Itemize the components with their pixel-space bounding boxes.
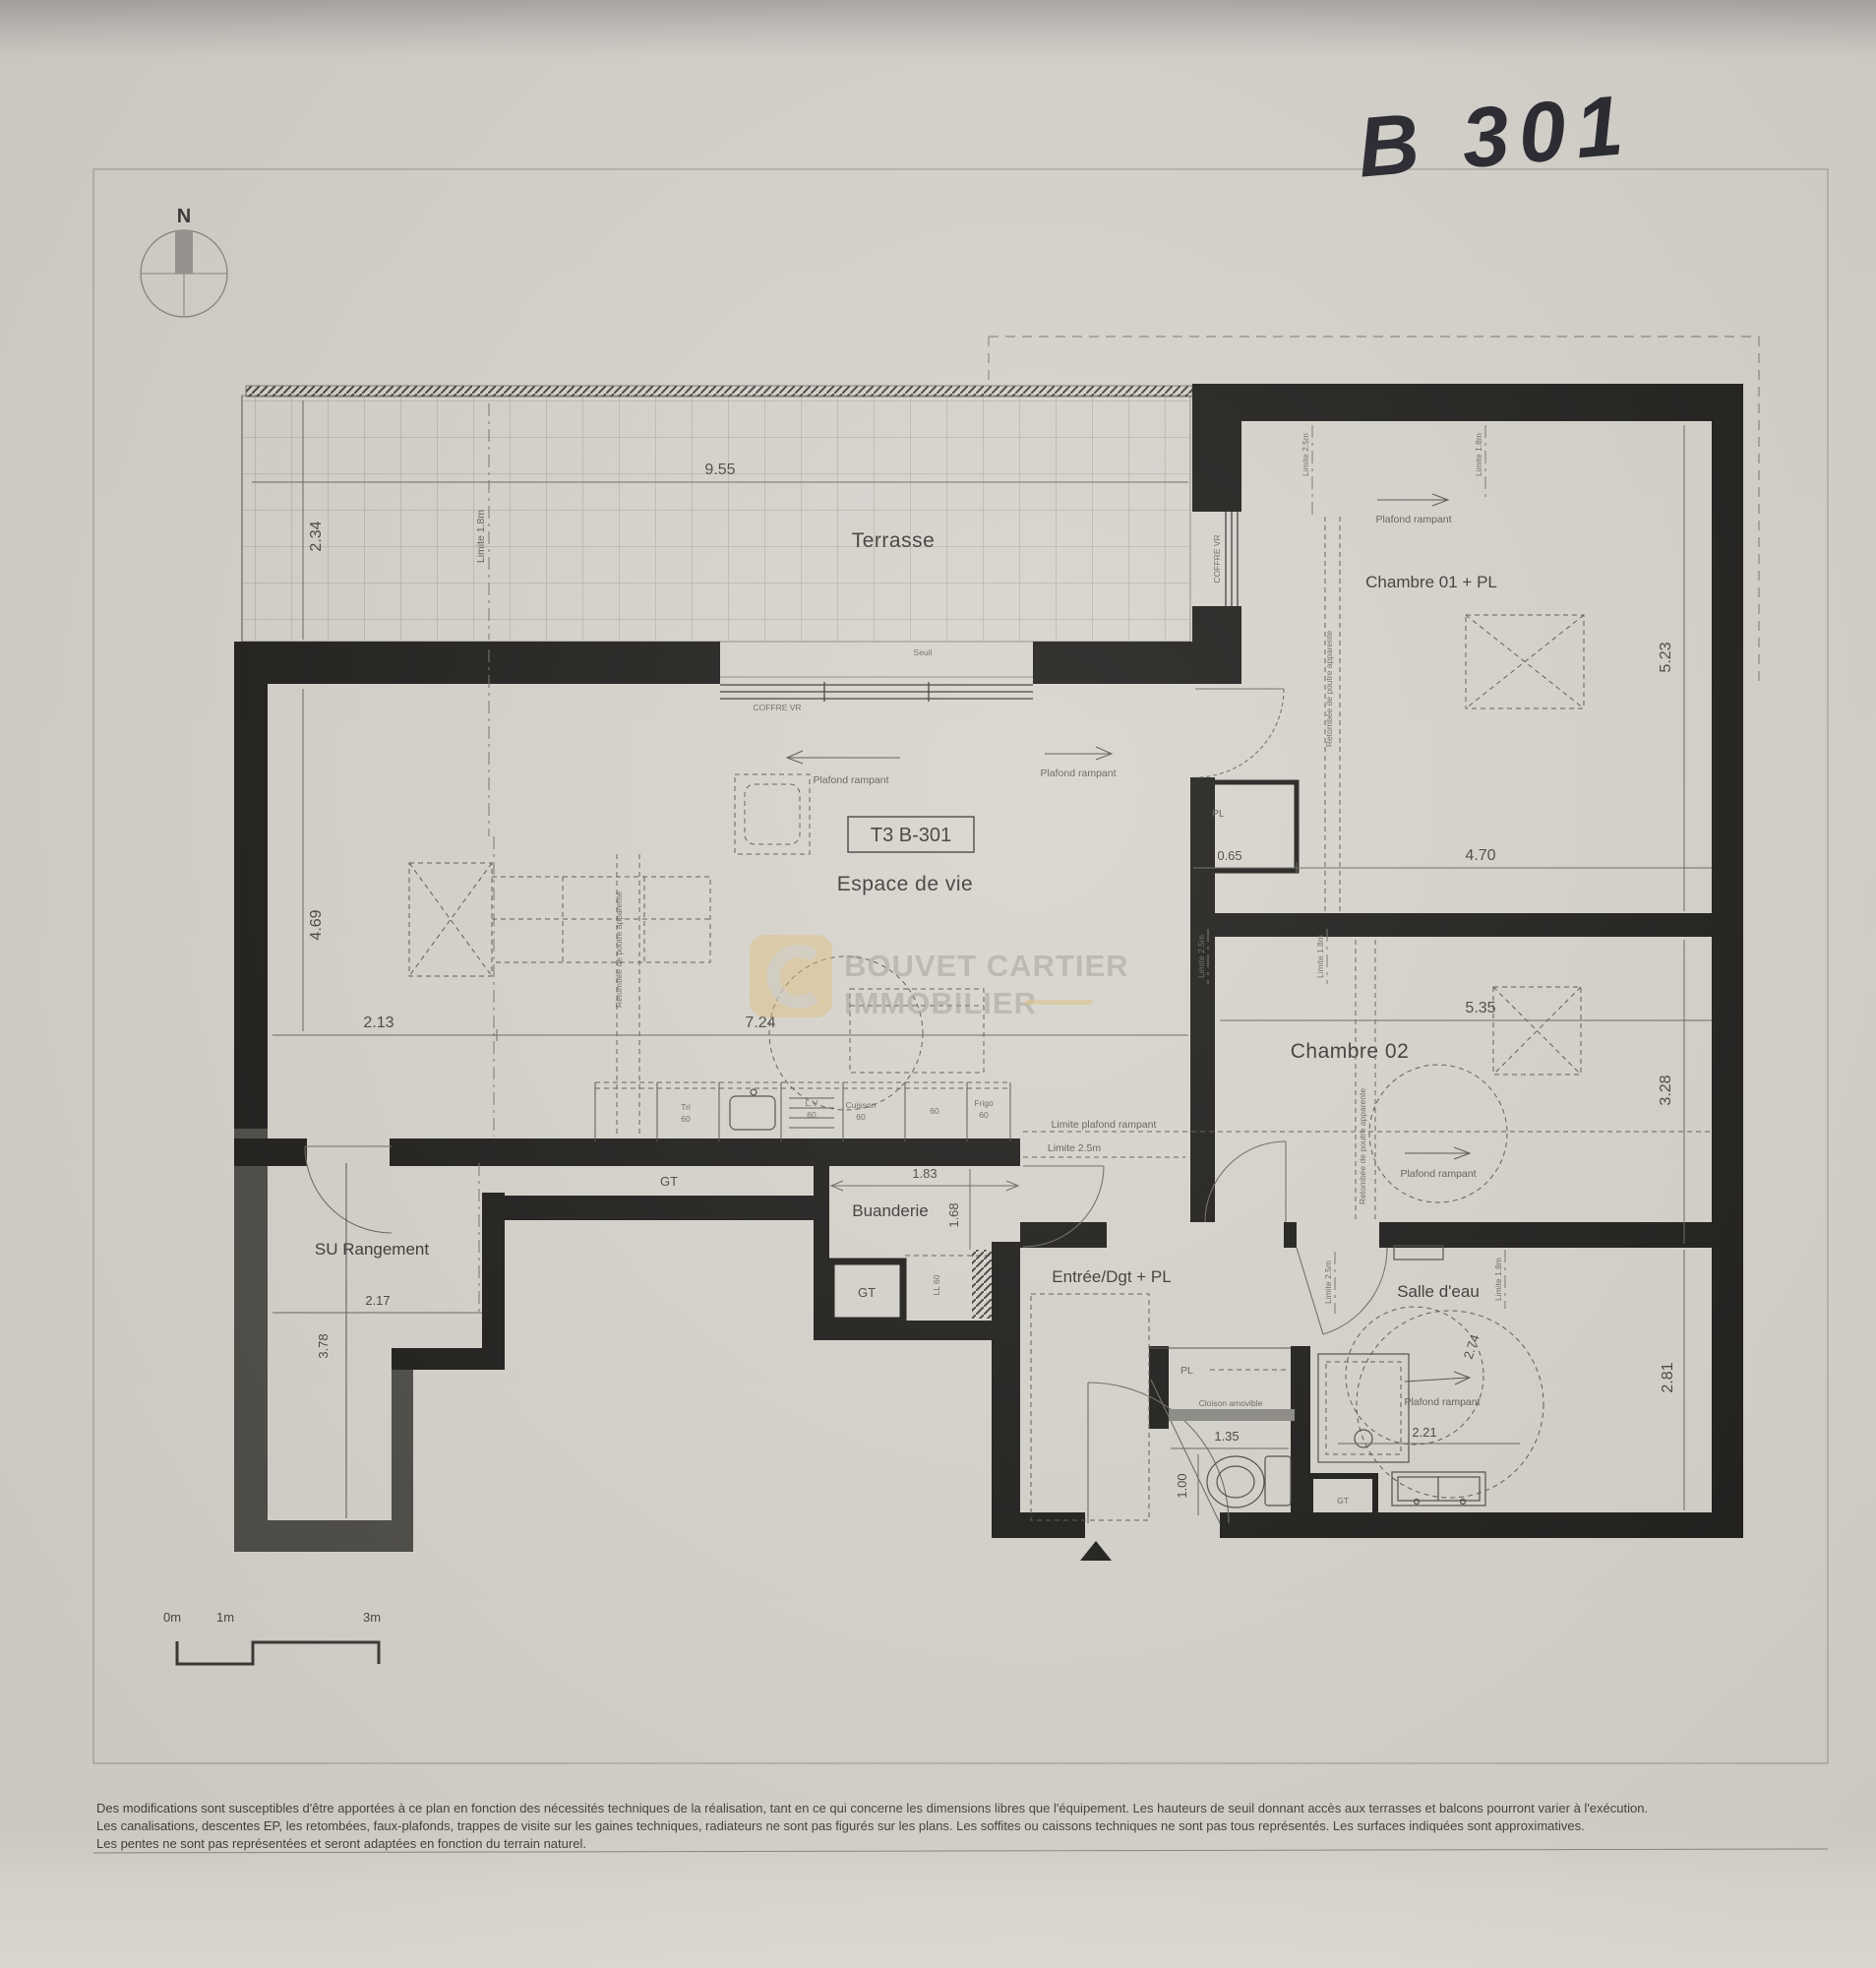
- ch02-rampant-zone: [1369, 1065, 1507, 1202]
- kitchen: Tri 60 L.V 60 Cuisson 60 60 Frigo 60: [595, 1082, 1010, 1141]
- svg-text:Plafond rampant: Plafond rampant: [1400, 1168, 1476, 1180]
- svg-text:60: 60: [930, 1106, 939, 1116]
- storage-wall-bottom: [234, 1520, 413, 1552]
- north-compass: N: [141, 206, 227, 317]
- espace-retombee: Retombée de poutre apparente: [614, 892, 624, 1008]
- kitchen-sink: [730, 1096, 775, 1130]
- door-rangement: [305, 1146, 392, 1233]
- footer-line2: Les canalisations, descentes EP, les ret…: [96, 1818, 1585, 1833]
- buanderie-gt-label: GT: [858, 1285, 876, 1300]
- room-label-terrasse: Terrasse: [852, 529, 936, 552]
- dim-sde-depth: 2.81: [1660, 1362, 1676, 1392]
- gt-duct-label: GT: [660, 1174, 678, 1189]
- watermark: BOUVET CARTIER IMMOBILIER: [750, 935, 1129, 1020]
- dim-terrasse-depth: 2.34: [308, 521, 325, 551]
- terrasse-limite-18: Limite 1.8m: [475, 510, 487, 564]
- room-label-chambre01: Chambre 01 + PL: [1365, 573, 1497, 591]
- dim-sde-width: 2.21: [1412, 1425, 1436, 1440]
- svg-text:Plafond rampant: Plafond rampant: [1040, 768, 1116, 779]
- kitchen-lv: L.V: [806, 1098, 818, 1108]
- room-label-chambre02: Chambre 02: [1291, 1040, 1410, 1063]
- chambre01-window: COFFRE VR: [1212, 512, 1238, 606]
- sliding-bay-window: COFFRE VR: [720, 677, 1033, 712]
- ch01-limite-25: Limite 2.5m: [1301, 433, 1310, 476]
- dim-rangement-width: 2.17: [365, 1293, 390, 1308]
- watermark-line2: IMMOBILIER: [844, 986, 1037, 1020]
- svg-text:60: 60: [856, 1112, 866, 1122]
- salle-eau-room: Salle d'eau Limite 2.5m Limite 1.8m Plaf…: [1310, 1250, 1684, 1515]
- scale-3m: 3m: [363, 1610, 381, 1625]
- chambre01-room: Chambre 01 + PL Plafond rampant Limite 2…: [1193, 425, 1712, 911]
- storage-wall-left: [234, 1129, 268, 1552]
- dim-ch1-depth: 5.23: [1658, 642, 1674, 672]
- corridor-limite-25: Limite 2.5m: [1048, 1142, 1102, 1154]
- corridor-annotations: Limite plafond rampant Limite 2.5m: [1023, 1119, 1712, 1157]
- dim-terrasse-width: 9.55: [704, 461, 735, 478]
- sde-plafond-rampant: Plafond rampant: [1404, 1372, 1480, 1408]
- ch02-bed: [1493, 987, 1581, 1075]
- room-label-rangement: SU Rangement: [315, 1240, 430, 1259]
- cloison-amovible-wall: [1169, 1409, 1295, 1421]
- chambre02-room: Chambre 02 Limite 2.5m Limite 1.8m Retom…: [1196, 929, 1712, 1244]
- dim-ch2-depth: 3.28: [1658, 1075, 1674, 1105]
- dim-buanderie-width: 1.83: [912, 1166, 937, 1181]
- scale-1m: 1m: [216, 1610, 234, 1625]
- dim-rangement-depth: 3.78: [316, 1333, 331, 1358]
- room-label-buanderie: Buanderie: [852, 1201, 929, 1220]
- svg-text:Plafond rampant: Plafond rampant: [813, 774, 888, 786]
- door-salle-eau: [1297, 1248, 1387, 1334]
- svg-text:60: 60: [807, 1110, 817, 1120]
- ch02-limite-18: Limite 1.8m: [1315, 935, 1325, 978]
- dim-espace-depth: 4.69: [308, 909, 325, 940]
- dim-pl-width: 0.65: [1217, 848, 1241, 863]
- watermark-line1: BOUVET CARTIER: [844, 949, 1129, 983]
- seuil-label: Seuil: [914, 647, 933, 657]
- svg-text:60: 60: [979, 1110, 989, 1120]
- ch01-plafond-rampant: Plafond rampant: [1375, 494, 1451, 525]
- sde-limite-18: Limite 1.8m: [1493, 1258, 1503, 1301]
- sde-limite-25: Limite 2.5m: [1323, 1261, 1333, 1304]
- handwritten-unit-number: B 301: [1354, 78, 1636, 196]
- entree-pl-label: PL: [1180, 1365, 1193, 1377]
- room-label-espace: Espace de vie: [837, 873, 973, 895]
- gt-duct: GT: [660, 1174, 678, 1189]
- scale-bar: 0m 1m 3m: [163, 1610, 381, 1664]
- ch02-plafond-rampant: Plafond rampant: [1400, 1147, 1476, 1180]
- ll60-label: LL 60: [932, 1274, 941, 1295]
- room-label-salle-eau: Salle d'eau: [1397, 1282, 1480, 1301]
- svg-text:60: 60: [681, 1114, 691, 1124]
- compass-north-label: N: [177, 206, 191, 227]
- coffre-vr-vertical-label: COFFRE VR: [1212, 534, 1222, 583]
- footer-line1: Des modifications sont susceptibles d'êt…: [96, 1801, 1648, 1815]
- rangement-room: SU Rangement 2.17 3.78: [272, 1163, 482, 1518]
- limite-plafond-rampant-label: Limite plafond rampant: [1052, 1119, 1157, 1131]
- dim-ch1-width: 4.70: [1465, 847, 1495, 864]
- ch02-retombee: Retombée de poutre apparente: [1358, 1088, 1367, 1204]
- dim-buanderie-depth: 1.68: [946, 1202, 961, 1227]
- svg-text:Plafond rampant: Plafond rampant: [1375, 514, 1451, 525]
- espace-de-vie-room: T3 B-301 Espace de vie Plafond rampant P…: [272, 649, 1188, 1141]
- ch01-pl-label: PL: [1212, 808, 1225, 820]
- footer-line3: Les pentes ne sont pas représentées et s…: [96, 1836, 586, 1851]
- door-chambre01: [1195, 689, 1284, 777]
- plafond-rampant-annotation-left: Plafond rampant: [787, 751, 900, 786]
- cloison-amovible-label: Cloison amovible: [1199, 1398, 1263, 1408]
- toilet: [1207, 1456, 1291, 1507]
- kitchen-cuisson: Cuisson: [846, 1100, 877, 1110]
- footer-disclaimer: Des modifications sont susceptibles d'êt…: [96, 1801, 1648, 1851]
- terrace-edge-hatch: [246, 386, 1192, 397]
- dim-wc-width: 1.35: [1214, 1429, 1239, 1444]
- scanned-floor-plan-photo: B 301 N Terrasse 9.55 2.34 Limite 1.8m S…: [0, 0, 1876, 1968]
- salle-eau-niche: [1394, 1246, 1443, 1260]
- vanity: [1392, 1472, 1485, 1506]
- entrance-marker: [1080, 1541, 1112, 1561]
- svg-text:GT: GT: [1337, 1496, 1349, 1506]
- plafond-rampant-annotation-right: Plafond rampant: [1040, 747, 1116, 779]
- ch02-limite-25: Limite 2.5m: [1196, 935, 1206, 978]
- dim-sde-diag: 2.74: [1461, 1332, 1483, 1361]
- ch01-limite-18: Limite 1.8m: [1474, 433, 1483, 476]
- storage-wall-right: [392, 1370, 413, 1552]
- unit-label: T3 B-301: [871, 825, 951, 846]
- terrasse-room: Terrasse 9.55 2.34 Limite 1.8m Seuil: [242, 386, 1192, 657]
- kitchen-frigo: Frigo: [974, 1098, 994, 1108]
- room-label-entree: Entrée/Dgt + PL: [1052, 1267, 1171, 1286]
- door-chambre02: [1205, 1141, 1286, 1222]
- dim-ch2-width: 5.35: [1465, 1000, 1495, 1016]
- entree-dashed-zone: [1031, 1294, 1149, 1520]
- svg-text:Plafond rampant: Plafond rampant: [1404, 1396, 1480, 1408]
- kitchen-tri: Tri: [681, 1102, 691, 1112]
- floor-plan-svg: B 301 N Terrasse 9.55 2.34 Limite 1.8m S…: [0, 0, 1876, 1968]
- ch01-retombee: Retombée de poutre apparente: [1324, 631, 1334, 747]
- ll-niche-hatch: [972, 1250, 992, 1319]
- dim-espace-w1: 2.13: [363, 1015, 393, 1031]
- compass-needle: [175, 230, 193, 274]
- ch01-bed: [1466, 615, 1584, 708]
- buanderie-room: Buanderie 1.83 1.68 GT LL 60: [831, 1166, 1018, 1321]
- coffre-vr-label: COFFRE VR: [753, 703, 801, 712]
- sde-gt-box: GT: [1310, 1476, 1375, 1515]
- dim-wc-depth: 1.00: [1175, 1473, 1189, 1498]
- scale-0m: 0m: [163, 1610, 181, 1625]
